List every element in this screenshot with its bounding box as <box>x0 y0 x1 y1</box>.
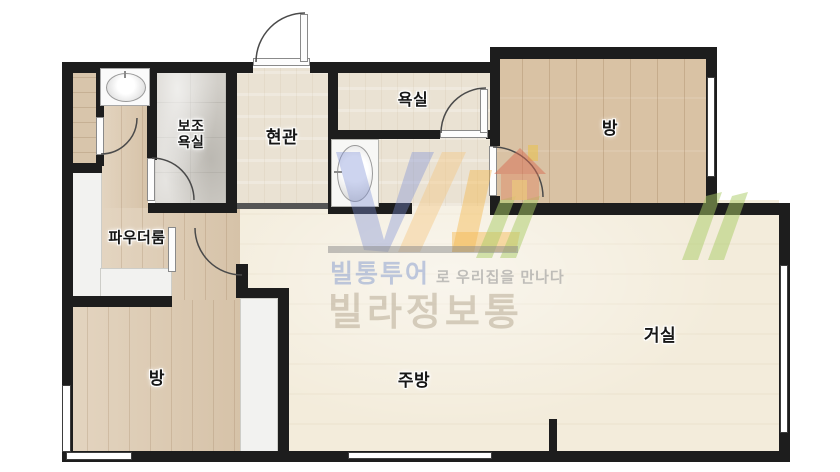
faucet-icon <box>334 171 342 173</box>
room-label-powder: 파우더룸 <box>108 229 165 246</box>
room-label-living: 거실 <box>644 326 676 346</box>
room-label-entry: 현관 <box>266 128 298 148</box>
door-sill-bedroom-top <box>489 146 497 196</box>
wall <box>333 130 440 139</box>
window <box>66 452 132 460</box>
window <box>707 77 715 177</box>
door-leaf-strip <box>96 117 104 155</box>
room-label-aux-bath: 보조 욕실 <box>178 118 205 150</box>
room-label-bedroom-top: 방 <box>602 119 618 139</box>
door-leaf-powder <box>168 227 176 272</box>
wall <box>490 196 500 215</box>
wall <box>226 62 237 213</box>
wall <box>549 419 557 452</box>
washbasin-icon <box>106 73 146 102</box>
room-floor-kitchen-living <box>230 200 779 455</box>
basin-niche <box>331 139 379 207</box>
door-leaf-entrance <box>300 14 308 62</box>
closet-powder-bottom <box>100 268 172 298</box>
window <box>348 452 492 459</box>
wall <box>96 154 104 166</box>
faucet-icon <box>124 71 126 78</box>
wall <box>62 62 253 73</box>
room-label-bath: 욕실 <box>398 92 428 110</box>
entry-threshold <box>237 203 328 209</box>
window <box>62 385 71 452</box>
room-label-bedroom-bottom: 방 <box>149 369 165 389</box>
wall <box>278 288 289 452</box>
room-floor-side-strip <box>70 68 98 168</box>
door-leaf-aux-bath <box>147 158 155 201</box>
wall <box>493 203 790 215</box>
room-label-kitchen: 주방 <box>398 371 430 391</box>
washbasin-counter <box>100 68 150 106</box>
door-leaf-bath <box>480 89 488 133</box>
wall <box>148 203 226 213</box>
window <box>780 265 788 433</box>
wall <box>490 47 717 59</box>
closet-bedroom-bottom <box>240 298 278 452</box>
floorplan-canvas: 빌통투어 로 우리집을 만나다 빌라정보통 보조 욕실 현관 욕실 방 파우더룸… <box>0 0 840 472</box>
door-arc <box>256 13 305 62</box>
wall <box>490 47 500 146</box>
pedestal-basin-icon <box>337 145 373 202</box>
wall <box>310 62 497 73</box>
wall <box>62 296 172 307</box>
